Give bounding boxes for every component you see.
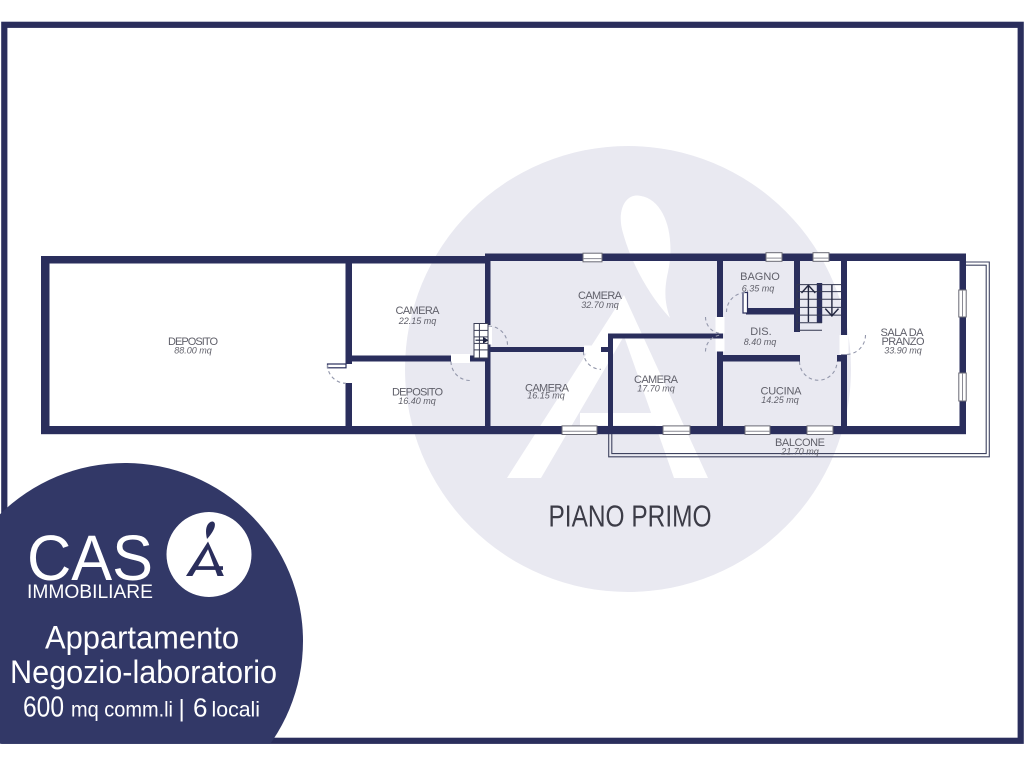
svg-text:IMMOBILIARE: IMMOBILIARE [27,582,153,603]
svg-text:16.40 mq: 16.40 mq [398,396,436,406]
svg-text:22.15 mq: 22.15 mq [398,316,437,326]
svg-text:32.70 mq: 32.70 mq [581,300,619,310]
svg-text:17.70 mq: 17.70 mq [637,384,675,394]
svg-text:16.15 mq: 16.15 mq [527,391,565,401]
svg-text:33.90 mq: 33.90 mq [884,346,922,356]
svg-text:88.00 mq: 88.00 mq [174,346,212,356]
svg-text:8.40 mq: 8.40 mq [744,337,777,347]
svg-text:Appartamento: Appartamento [45,620,239,656]
svg-text:PIANO PRIMO: PIANO PRIMO [549,499,712,534]
svg-text:6.35 mq: 6.35 mq [742,284,775,294]
svg-text:BAGNO: BAGNO [740,271,780,283]
svg-text:21.70 mq: 21.70 mq [780,447,819,457]
svg-text:14.25 mq: 14.25 mq [761,395,799,405]
svg-text:Negozio-laboratorio: Negozio-laboratorio [10,654,277,690]
